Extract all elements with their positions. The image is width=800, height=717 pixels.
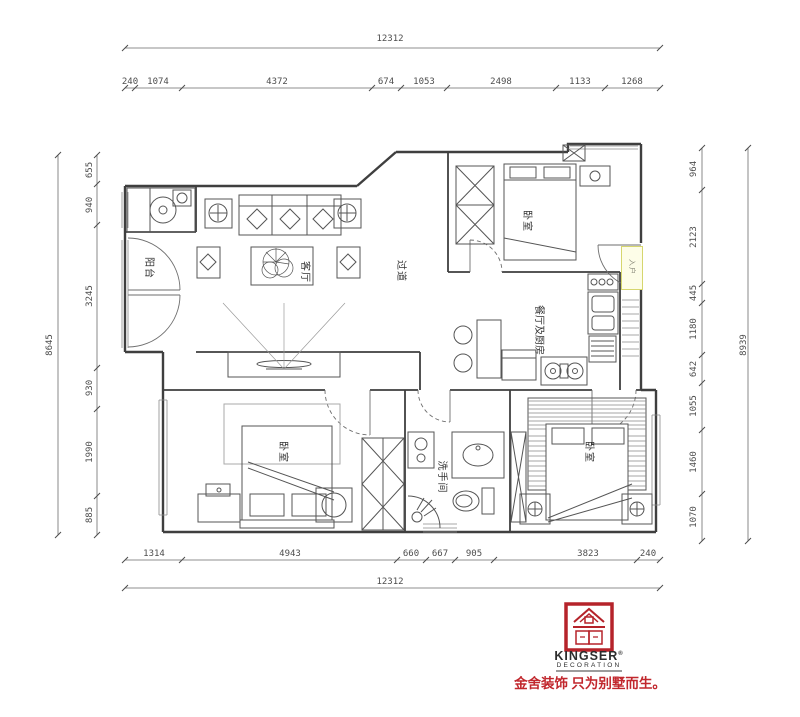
logo-brand: KINGSER® [549, 649, 629, 663]
dim-top-seg: 1074 [141, 77, 175, 87]
dim-top-seg: 1268 [615, 77, 649, 87]
vanity [452, 432, 504, 478]
sofa-pillows [247, 209, 333, 229]
fridge [589, 336, 616, 362]
dim-right-seg: 445 [689, 276, 699, 310]
dim-right-seg: 642 [689, 352, 699, 386]
plant [262, 248, 293, 278]
dim-bottom-seg: 3823 [571, 549, 605, 559]
bedroom-left-furniture [198, 404, 404, 530]
floor-plan-drawing [0, 0, 800, 717]
dim-bottom-seg: 1314 [137, 549, 171, 559]
living-room-furniture [197, 195, 361, 377]
dim-right-total: 8939 [739, 328, 749, 362]
bathroom-furniture [408, 432, 504, 528]
dim-bottom-total: 12312 [358, 577, 422, 587]
dining-chair [454, 326, 472, 344]
dining-table [477, 320, 501, 378]
dim-bottom-seg: 240 [631, 549, 665, 559]
dim-left-seg: 930 [85, 371, 95, 405]
dim-bottom-seg: 667 [423, 549, 457, 559]
dim-right-seg: 1055 [689, 389, 699, 423]
dim-left-total: 8645 [45, 328, 55, 362]
dim-left-seg: 885 [85, 498, 95, 532]
dim-bottom-seg: 4943 [273, 549, 307, 559]
laundry-cabinet [127, 188, 195, 232]
dim-right-seg: 2123 [689, 220, 699, 254]
registered-mark: ® [618, 651, 623, 657]
stove [541, 357, 587, 385]
nightstand [198, 494, 240, 522]
room-label-bedroom-top: 卧室 [519, 201, 533, 241]
room-label-bedroom-right: 卧室 [581, 432, 595, 472]
logo-brand-text: KINGSER [554, 649, 618, 663]
kitchen-window-hatch [622, 300, 639, 356]
dim-bottom-seg: 905 [457, 549, 491, 559]
bedroom-top-door [470, 240, 502, 272]
dim-right-seg: 1460 [689, 445, 699, 479]
balcony-furniture [127, 188, 195, 232]
dim-right-seg: 1180 [689, 312, 699, 346]
dim-left-seg: 3245 [85, 279, 95, 313]
room-label-balcony: 阳台 [141, 248, 155, 288]
dim-left-seg: 655 [85, 153, 95, 187]
dim-left-seg: 1990 [85, 435, 95, 469]
dim-top-seg: 1133 [563, 77, 597, 87]
room-label-hallway: 过道 [393, 251, 407, 291]
dim-right-seg: 964 [689, 152, 699, 186]
toilet-bowl [453, 491, 479, 511]
room-label-bedroom-left: 卧室 [275, 432, 289, 472]
dim-top-seg: 4372 [260, 77, 294, 87]
dim-left-seg: 940 [85, 188, 95, 222]
dining-chair [454, 354, 472, 372]
dim-top-seg: 2498 [484, 77, 518, 87]
room-label-bathroom: 洗手间 [434, 453, 448, 501]
bathroom-door [418, 390, 450, 422]
nightstand [580, 166, 610, 186]
logo-slogan: 金舍装饰 只为别墅而生。 [505, 672, 675, 692]
dim-top-seg: 674 [369, 77, 403, 87]
dim-top-seg: 1053 [407, 77, 441, 87]
room-label-dining-kitchen: 餐厅及厨房 [531, 298, 545, 362]
floor-plan-page: 12312 240 1074 4372 674 1053 2498 1133 1… [0, 0, 800, 717]
logo-subtitle: DECORATION [549, 662, 629, 669]
dim-top-total: 12312 [358, 34, 422, 44]
room-label-entry: 入户 [627, 252, 637, 282]
bedroom-top-furniture [456, 145, 610, 260]
room-label-living-room: 客厅 [297, 252, 311, 292]
wash-basin [463, 444, 493, 466]
washing-machine [150, 197, 176, 223]
dim-right-seg: 1070 [689, 500, 699, 534]
tv-projection-lines [223, 303, 345, 369]
toilet-tank [482, 488, 494, 514]
